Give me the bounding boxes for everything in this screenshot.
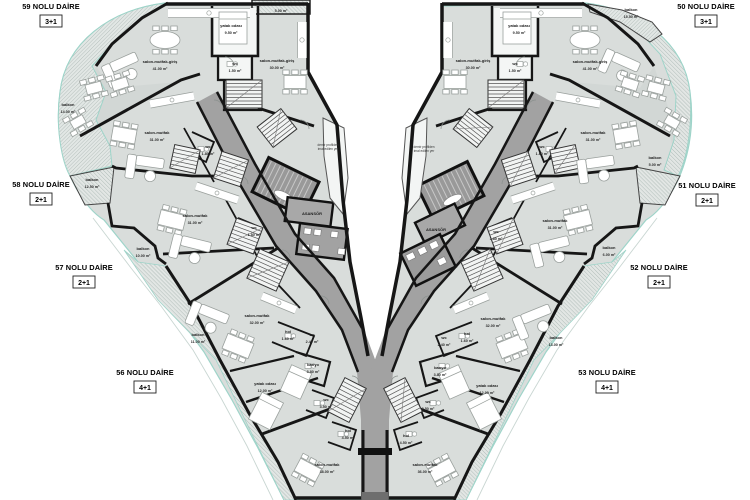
svg-text:salon-mutfak: salon-mutfak <box>481 316 507 321</box>
svg-text:salon-mutfak: salon-mutfak <box>315 462 341 467</box>
svg-text:12.00 m²: 12.00 m² <box>258 389 274 393</box>
svg-text:3.80 m²: 3.80 m² <box>307 370 320 374</box>
svg-text:38.00 m²: 38.00 m² <box>320 470 336 474</box>
svg-text:4.50 m²: 4.50 m² <box>342 436 355 440</box>
svg-text:3.50 m²: 3.50 m² <box>320 405 333 409</box>
svg-text:41.00 m²: 41.00 m² <box>583 67 599 71</box>
svg-text:hol: hol <box>464 331 470 336</box>
svg-text:13.00 m²: 13.00 m² <box>549 343 565 347</box>
svg-text:9.50 m²: 9.50 m² <box>513 31 526 35</box>
svg-text:banyo: banyo <box>434 365 446 370</box>
svg-text:yatak odası: yatak odası <box>476 383 498 388</box>
svg-text:30.00 m²: 30.00 m² <box>466 66 482 70</box>
svg-text:12.00 m²: 12.00 m² <box>480 391 496 395</box>
svg-text:2+1: 2+1 <box>701 198 713 205</box>
svg-text:yatak odası: yatak odası <box>254 381 276 386</box>
svg-text:31.00 m²: 31.00 m² <box>548 226 564 230</box>
svg-text:51 NOLU DAİRE: 51 NOLU DAİRE <box>678 181 736 190</box>
svg-text:balkon: balkon <box>62 102 75 107</box>
svg-text:wc: wc <box>250 225 257 230</box>
svg-text:32.00 m²: 32.00 m² <box>486 324 502 328</box>
svg-text:50 NOLU DAİRE: 50 NOLU DAİRE <box>677 2 735 11</box>
svg-text:2+1: 2+1 <box>78 280 90 287</box>
svg-text:balkon: balkon <box>192 332 205 337</box>
svg-text:11.00 m²: 11.00 m² <box>191 340 206 344</box>
svg-text:hol: hol <box>403 433 409 438</box>
svg-text:1.50 m²: 1.50 m² <box>229 69 242 73</box>
svg-text:wc: wc <box>204 144 211 149</box>
svg-text:wc: wc <box>440 335 447 340</box>
svg-text:balkon: balkon <box>275 1 288 6</box>
svg-text:4+1: 4+1 <box>139 385 151 392</box>
svg-text:5.00 m²: 5.00 m² <box>275 9 288 13</box>
svg-text:wc: wc <box>308 332 315 337</box>
svg-text:hol: hol <box>345 428 351 433</box>
svg-text:2.40 m²: 2.40 m² <box>306 340 319 344</box>
svg-text:balkon: balkon <box>137 246 150 251</box>
svg-text:3.80 m²: 3.80 m² <box>434 373 447 377</box>
svg-text:6.00 m²: 6.00 m² <box>603 253 616 257</box>
svg-text:salon-mutfak: salon-mutfak <box>245 313 271 318</box>
svg-text:1.80 m²: 1.80 m² <box>248 233 261 237</box>
svg-text:59 NOLU DAİRE: 59 NOLU DAİRE <box>22 2 80 11</box>
svg-text:15.50 m²: 15.50 m² <box>624 15 640 19</box>
svg-text:balkon: balkon <box>625 7 638 12</box>
svg-text:wc: wc <box>492 229 499 234</box>
svg-text:ASANSÖR: ASANSÖR <box>426 227 446 232</box>
svg-text:4.50 m²: 4.50 m² <box>400 441 413 445</box>
svg-text:10.00 m²: 10.00 m² <box>136 254 152 258</box>
svg-text:wc: wc <box>511 61 518 66</box>
svg-text:balkon: balkon <box>86 177 99 182</box>
svg-text:31.00 m²: 31.00 m² <box>150 138 166 142</box>
svg-text:salon-mutfak: salon-mutfak <box>413 462 439 467</box>
svg-text:58 NOLU DAİRE: 58 NOLU DAİRE <box>12 180 70 189</box>
svg-text:14.00 m²: 14.00 m² <box>61 110 77 114</box>
svg-text:3+1: 3+1 <box>45 19 57 26</box>
svg-text:1.50 m²: 1.50 m² <box>509 69 522 73</box>
svg-text:32.00 m²: 32.00 m² <box>250 321 266 325</box>
svg-text:balkon: balkon <box>649 155 662 160</box>
svg-text:ASANSÖR: ASANSÖR <box>302 211 322 216</box>
svg-text:1.80 m²: 1.80 m² <box>490 237 503 241</box>
svg-text:1.60 m²: 1.60 m² <box>282 337 295 341</box>
svg-text:31.00 m²: 31.00 m² <box>586 138 602 142</box>
svg-text:salon-mutfak: salon-mutfak <box>581 130 607 135</box>
svg-text:1.60 m²: 1.60 m² <box>461 339 474 343</box>
svg-text:30.00 m²: 30.00 m² <box>270 66 286 70</box>
svg-text:1.80 m²: 1.80 m² <box>202 152 215 156</box>
svg-text:2.40 m²: 2.40 m² <box>438 343 451 347</box>
svg-text:5.00 m²: 5.00 m² <box>649 163 662 167</box>
svg-text:hol: hol <box>285 329 291 334</box>
svg-text:yatak odası: yatak odası <box>508 23 530 28</box>
svg-text:52 NOLU DAİRE: 52 NOLU DAİRE <box>630 263 688 272</box>
svg-text:2+1: 2+1 <box>35 197 47 204</box>
svg-text:salon-mutfak: salon-mutfak <box>183 213 209 218</box>
svg-text:57 NOLU DAİRE: 57 NOLU DAİRE <box>55 263 113 272</box>
svg-text:salon-mutfak-giriş: salon-mutfak-giriş <box>260 58 295 63</box>
svg-text:12.50 m²: 12.50 m² <box>85 185 101 189</box>
svg-text:1.80 m²: 1.80 m² <box>536 152 549 156</box>
svg-text:3+1: 3+1 <box>700 19 712 26</box>
svg-text:balkon: balkon <box>550 335 563 340</box>
svg-text:salon-mutfak-giriş: salon-mutfak-giriş <box>456 58 491 63</box>
svg-text:salon-mutfak-giriş: salon-mutfak-giriş <box>143 59 178 64</box>
svg-text:3.50 m²: 3.50 m² <box>422 407 435 411</box>
svg-text:53 NOLU DAİRE: 53 NOLU DAİRE <box>578 368 636 377</box>
svg-text:31.00 m²: 31.00 m² <box>188 221 204 225</box>
svg-text:yatak odası: yatak odası <box>220 23 242 28</box>
svg-text:salon-mutfak: salon-mutfak <box>145 130 171 135</box>
svg-text:4+1: 4+1 <box>601 385 613 392</box>
svg-text:wc: wc <box>322 397 329 402</box>
svg-text:imal edilen yer: imal edilen yer <box>414 149 435 153</box>
svg-text:41.00 m²: 41.00 m² <box>153 67 169 71</box>
svg-text:9.50 m²: 9.50 m² <box>225 31 238 35</box>
svg-text:2+1: 2+1 <box>653 280 665 287</box>
svg-text:56 NOLU DAİRE: 56 NOLU DAİRE <box>116 368 174 377</box>
svg-text:salon-mutfak-giriş: salon-mutfak-giriş <box>573 59 608 64</box>
svg-text:imal edilen yer: imal edilen yer <box>318 147 339 151</box>
svg-text:balkon: balkon <box>603 245 616 250</box>
svg-text:wc: wc <box>231 61 238 66</box>
svg-text:wc: wc <box>424 399 431 404</box>
svg-text:36.00 m²: 36.00 m² <box>418 470 434 474</box>
svg-text:banyo: banyo <box>307 362 319 367</box>
svg-text:salon-mutfak: salon-mutfak <box>543 218 569 223</box>
svg-text:wc: wc <box>538 144 545 149</box>
